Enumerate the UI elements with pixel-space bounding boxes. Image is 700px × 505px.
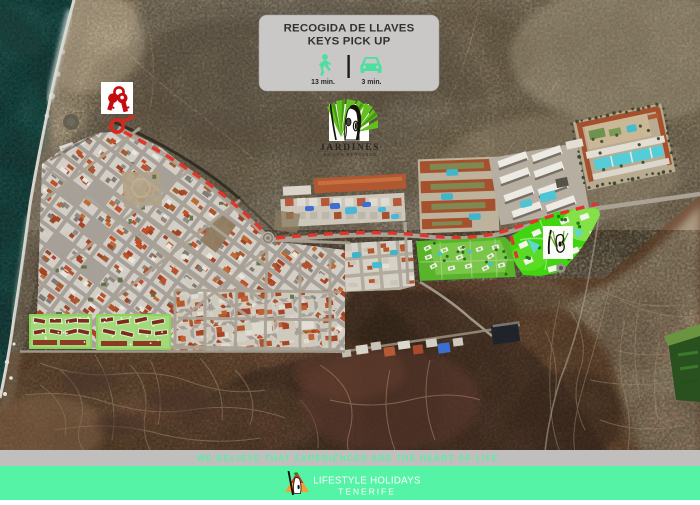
svg-text:3 min.: 3 min.	[362, 79, 382, 86]
svg-text:TENERIFE: TENERIFE	[338, 487, 396, 497]
svg-text:RECOGIDA DE LLAVES: RECOGIDA DE LLAVES	[284, 23, 415, 35]
svg-text:KEYS PICK UP: KEYS PICK UP	[308, 36, 391, 48]
svg-text:WE BELIEVE THAT EXPERIENCES AR: WE BELIEVE THAT EXPERIENCES ARE THE HEAR…	[197, 453, 499, 463]
svg-text:DE LOS MENCEYES: DE LOS MENCEYES	[323, 152, 376, 157]
svg-text:13 min.: 13 min.	[311, 79, 335, 86]
svg-text:LIFESTYLE HOLIDAYS: LIFESTYLE HOLIDAYS	[313, 476, 421, 487]
